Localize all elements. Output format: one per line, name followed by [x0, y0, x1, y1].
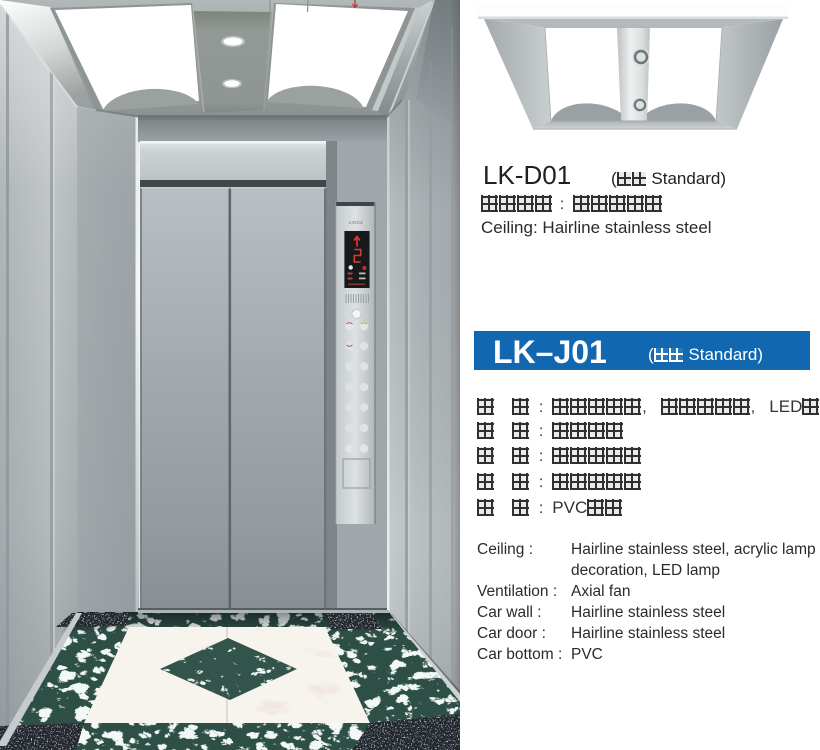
- svg-text:LINGZ: LINGZ: [349, 220, 363, 225]
